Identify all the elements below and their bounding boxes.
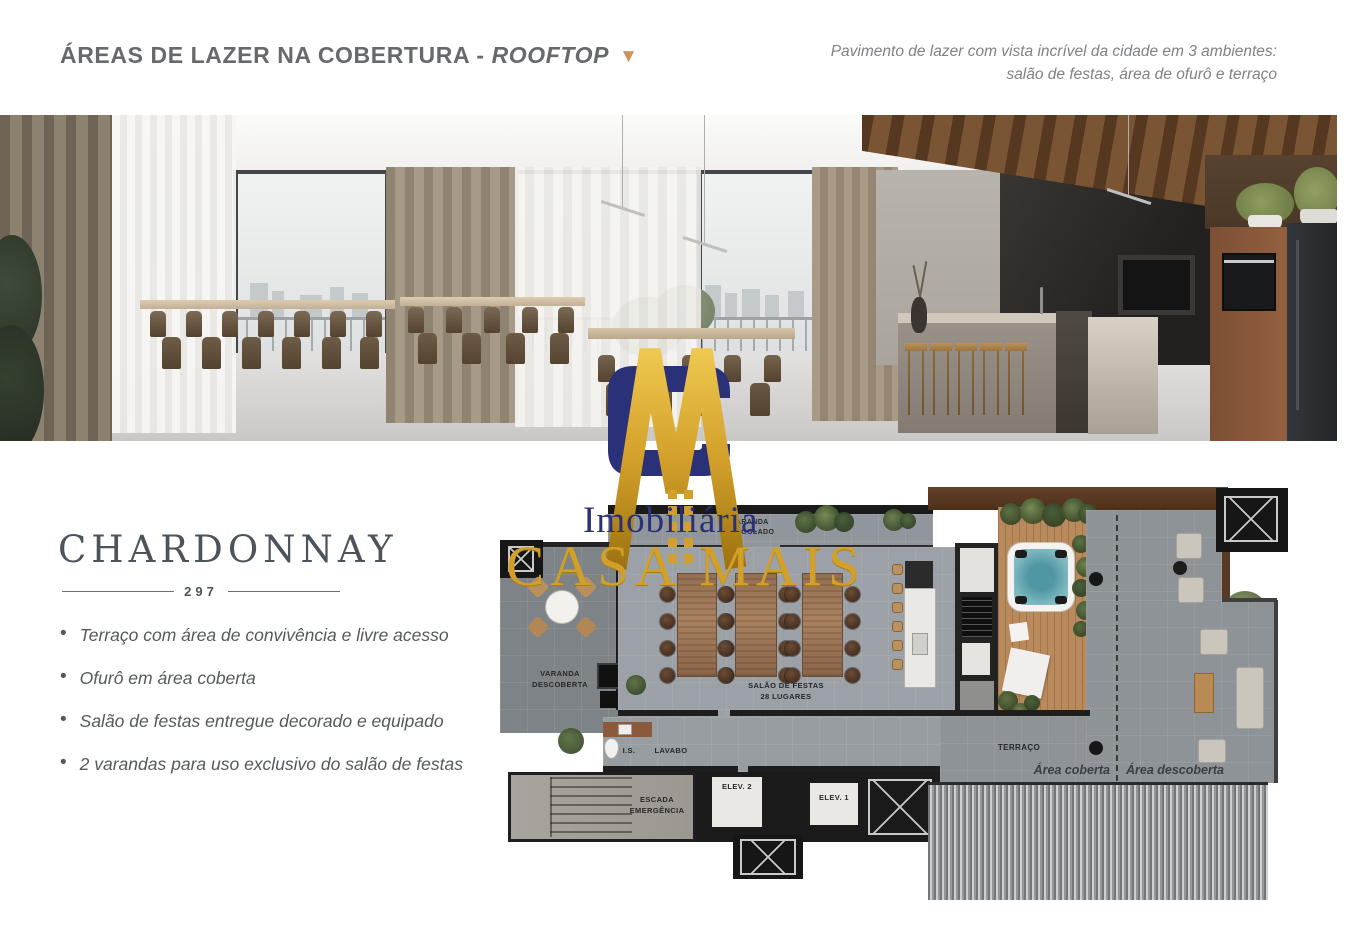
page-title-rooftop: ROOFTOP xyxy=(492,42,610,68)
corrugated-roof xyxy=(928,782,1268,900)
plant-icon xyxy=(900,513,916,529)
shaft-x-icon xyxy=(868,779,932,835)
brand-number-row: 297 xyxy=(62,584,340,599)
bullet-icon: • xyxy=(60,751,67,777)
label-salao: SALÃO DE FESTAS28 LUGARES xyxy=(738,681,834,702)
feature-text: 2 varandas para uso exclusivo do salão d… xyxy=(80,751,463,777)
shaft-x-icon xyxy=(740,839,796,875)
list-item: •Ofurô em área coberta xyxy=(60,665,490,691)
plant-icon xyxy=(558,728,584,754)
pendant-bar xyxy=(683,236,728,253)
pendant-cord xyxy=(622,115,623,207)
plan-wall xyxy=(730,710,955,716)
feature-list: •Terraço com área de convivência e livre… xyxy=(60,622,490,794)
pendant-cord xyxy=(1128,115,1129,195)
terrace-chair xyxy=(1200,629,1228,655)
column-dot xyxy=(1089,741,1103,755)
rooftop-interior-render xyxy=(0,115,1337,441)
terrace-chair xyxy=(1178,577,1204,603)
label-varanda-pergolado: VARANDAPERGOLADO xyxy=(710,518,790,538)
lavabo-sink xyxy=(618,724,632,735)
plant-icon xyxy=(1000,503,1022,525)
brand-logo-name: CHARDONNAY xyxy=(58,528,344,571)
feature-text: Ofurô em área coberta xyxy=(80,665,256,691)
plant-icon xyxy=(834,512,854,532)
skylight-x-icon xyxy=(1224,496,1278,542)
label-lavabo: LAVABO xyxy=(646,746,696,757)
bullet-icon: • xyxy=(60,622,67,648)
label-elev1: ELEV. 1 xyxy=(810,793,858,804)
terrace-wood-table xyxy=(1194,673,1214,713)
feature-text: Salão de festas entregue decorado e equi… xyxy=(80,708,444,734)
page: { "header": { "title_main": "ÁREAS DE LA… xyxy=(0,0,1366,951)
dashed-divider xyxy=(1116,515,1118,781)
terrace-sofa xyxy=(1236,667,1264,729)
skylight-box xyxy=(1216,488,1288,552)
label-escada: ESCADAEMERGÊNCIA xyxy=(622,795,692,816)
plant-icon xyxy=(626,675,646,695)
pendant-bar xyxy=(1107,188,1152,205)
label-varanda-descoberta: VARANDADESCOBERTA xyxy=(516,669,604,690)
column-dot xyxy=(1089,572,1103,586)
label-is: I.S. xyxy=(616,746,642,757)
plan-wall xyxy=(618,710,718,716)
list-item: •Terraço com área de convivência e livre… xyxy=(60,622,490,648)
plan-wall xyxy=(940,710,1090,716)
label-terraco: TERRAÇO xyxy=(992,742,1046,753)
label-area-coberta: Área coberta xyxy=(1032,763,1110,777)
plan-wall xyxy=(1274,600,1278,783)
terrace-chair xyxy=(1176,533,1202,559)
pendant-lights xyxy=(0,115,1337,441)
divider-line xyxy=(62,591,174,592)
page-title-main: ÁREAS DE LAZER NA COBERTURA - xyxy=(60,42,492,68)
elevator1-cab xyxy=(810,783,858,825)
brand-number: 297 xyxy=(184,584,218,599)
rooftop-floorplan: VARANDAPERGOLADO VARANDADESCOBERTA SALÃO… xyxy=(500,485,1296,905)
corridor-floor xyxy=(603,717,940,773)
header-tagline-line1: Pavimento de lazer com vista incrível da… xyxy=(831,40,1277,63)
bullet-icon: • xyxy=(60,665,67,691)
list-item: •Salão de festas entregue decorado e equ… xyxy=(60,708,490,734)
terrace-chair xyxy=(1198,739,1226,763)
triangle-down-icon: ▼ xyxy=(619,46,638,68)
label-area-descoberta: Área descoberta xyxy=(1126,763,1236,777)
header-tagline-line2: salão de festas, área de ofurô e terraço xyxy=(831,63,1277,86)
stair-treads xyxy=(550,777,632,837)
list-item: •2 varandas para uso exclusivo do salão … xyxy=(60,751,490,777)
terrace-side-table xyxy=(1173,561,1187,575)
header-tagline: Pavimento de lazer com vista incrível da… xyxy=(831,40,1277,87)
divider-line xyxy=(228,591,340,592)
feature-text: Terraço com área de convivência e livre … xyxy=(80,622,449,648)
plant-icon xyxy=(1024,695,1040,711)
pendant-cord xyxy=(704,115,705,243)
pendant-bar xyxy=(601,200,646,217)
plan-wall xyxy=(1222,598,1277,602)
page-title: ÁREAS DE LAZER NA COBERTURA - ROOFTOP▼ xyxy=(60,42,639,69)
label-elev2: ELEV. 2 xyxy=(712,782,762,793)
bullet-icon: • xyxy=(60,708,67,734)
